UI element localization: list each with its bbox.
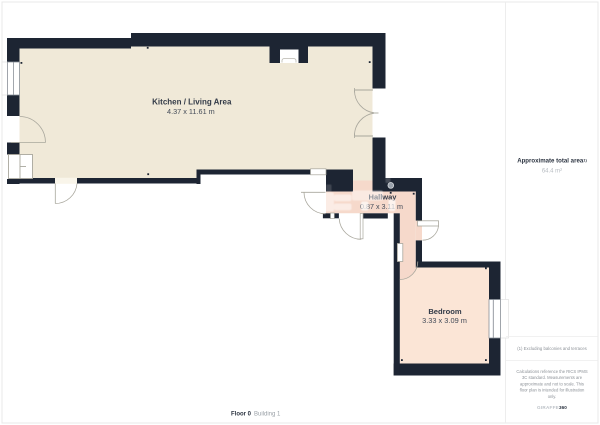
svg-text:approximate and not to scale.: approximate and not to scale. This: [520, 381, 584, 386]
svg-text:Floor 0: Floor 0: [231, 412, 252, 418]
svg-text:Bedroom: Bedroom: [428, 307, 462, 316]
svg-text:Approximate total area1): Approximate total area1): [517, 158, 587, 165]
svg-text:Building 1: Building 1: [254, 412, 281, 418]
svg-text:(1) Excluding balconies and te: (1) Excluding balconies and terraces: [517, 346, 587, 351]
svg-text:GIRAFFE360: GIRAFFE360: [537, 405, 567, 410]
svg-text:Calculations reference the RIC: Calculations reference the RICS IPMS: [516, 369, 587, 374]
svg-text:3C standard. Measurements are: 3C standard. Measurements are: [522, 375, 583, 380]
svg-text:Kitchen / Living Area: Kitchen / Living Area: [152, 98, 232, 107]
svg-text:64.4 m²: 64.4 m²: [542, 169, 562, 175]
svg-text:4.37 x 11.61 m: 4.37 x 11.61 m: [167, 107, 215, 116]
svg-text:3.33 x 3.09 m: 3.33 x 3.09 m: [422, 316, 467, 325]
svg-text:floor plan is intended for ill: floor plan is intended for illustration: [520, 388, 585, 393]
svg-text:only.: only.: [548, 394, 557, 399]
